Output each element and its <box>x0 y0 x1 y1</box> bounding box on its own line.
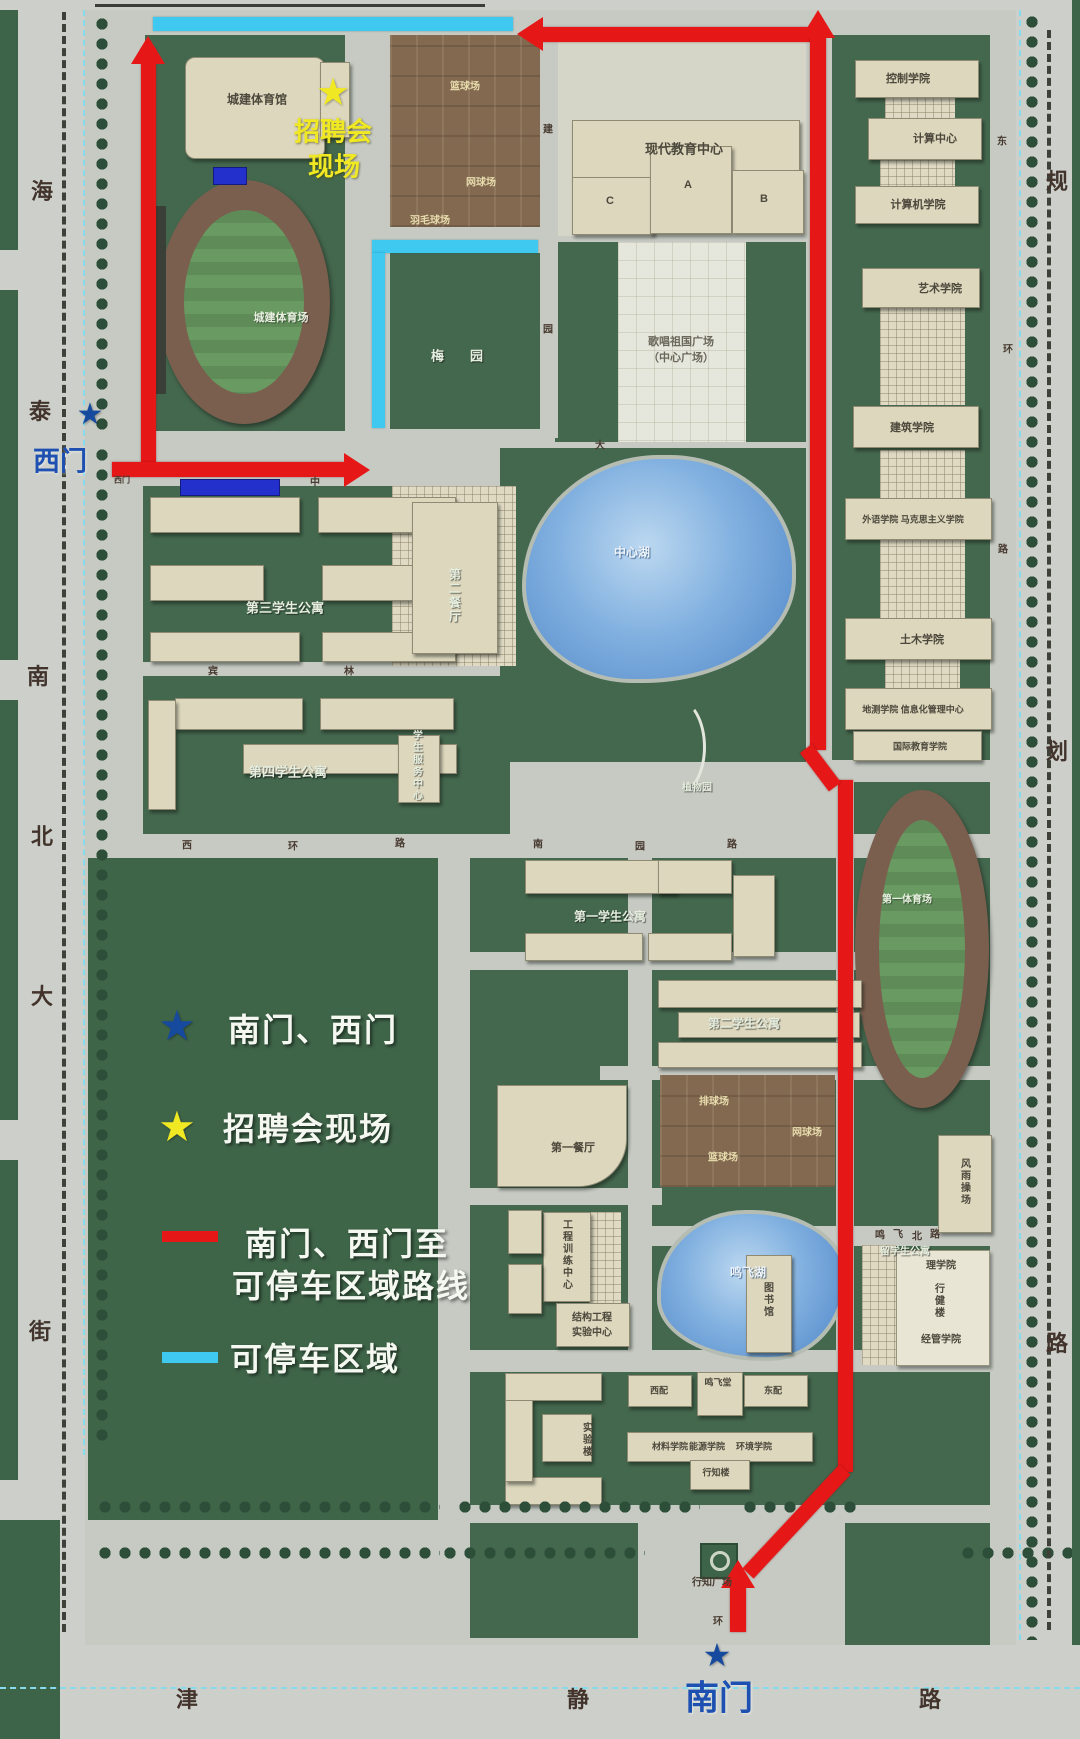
place-label: 控制学院 <box>886 70 930 86</box>
place-label: 工程训练中心 <box>559 1219 574 1291</box>
place-label: 结构工程 <box>572 1309 612 1324</box>
southwest-green-block <box>88 858 438 1520</box>
dorm-building <box>150 632 300 662</box>
road-name-char: 大 <box>595 437 605 452</box>
route-arrow-icon <box>344 453 370 487</box>
place-label: 实验楼 <box>579 1422 594 1458</box>
dorm-building <box>658 980 862 1008</box>
college-plaza <box>880 305 965 405</box>
north-courts-area <box>390 35 540 227</box>
place-label: 第一餐厅 <box>551 1139 595 1155</box>
college-plaza <box>885 658 960 688</box>
place-label: 网球场 <box>792 1124 822 1139</box>
place-label: 图书馆 <box>760 1282 775 1318</box>
lab-building <box>505 1373 602 1401</box>
street-name-char: 静 <box>567 1682 589 1714</box>
place-label: 第二餐厅 <box>447 568 464 624</box>
street-green <box>0 1520 60 1739</box>
place-label: 计算机学院 <box>891 196 946 212</box>
parking-area <box>153 17 513 31</box>
place-label: 行知楼 <box>702 1466 729 1479</box>
route-line <box>810 24 826 750</box>
legend-gate-star-icon: ★ <box>158 1005 196 1047</box>
legend-parking-swatch <box>162 1352 218 1363</box>
road-name-char: 宾 <box>208 663 218 678</box>
route-line <box>730 1588 746 1632</box>
legend-route-label-line2: 可停车区域路线 <box>232 1261 470 1307</box>
building <box>508 1264 542 1314</box>
route-line <box>141 48 156 463</box>
tree-row <box>92 14 114 434</box>
place-label: 第二学生公寓 <box>708 1015 780 1032</box>
street-name-char: 南 <box>27 659 49 691</box>
road-name-char: 行知广场 <box>692 1574 732 1589</box>
street-green <box>0 10 18 250</box>
college-plaza <box>885 96 955 118</box>
place-label: 学生服务中心 <box>409 730 424 802</box>
place-label: 现代教育中心 <box>645 139 723 158</box>
road-name-char: 路 <box>727 836 737 851</box>
road-name-char: 环 <box>713 1613 723 1628</box>
se-green-block <box>845 1523 990 1645</box>
road-name-char: 环 <box>1003 341 1013 356</box>
blue-banner-sign <box>180 479 280 496</box>
top-border-line <box>95 4 485 7</box>
place-label: 国际教育学院 <box>893 740 947 753</box>
campus-map: ★ 西门 ★ 南门 ★ 招聘会 现场 ★ 南门、西门 ★ 招聘会现场 南门、西门… <box>0 0 1080 1739</box>
street-name-char: 北 <box>31 819 53 851</box>
route-arrow-icon <box>517 17 543 51</box>
road-name-char: 园 <box>543 321 553 336</box>
place-label: 城建体育馆 <box>227 91 287 108</box>
place-label: 建筑学院 <box>890 419 934 435</box>
place-label: 植物园 <box>682 779 712 794</box>
venue-star-icon: ★ <box>316 74 350 112</box>
west-gate-label: 西门 <box>33 440 87 479</box>
place-label: （中心广场） <box>648 349 714 365</box>
lab-building <box>505 1400 533 1482</box>
place-label: 环境学院 <box>736 1440 772 1453</box>
place-label: 东配 <box>764 1384 782 1397</box>
road-name-char: 北 <box>912 1228 922 1243</box>
building <box>733 875 775 957</box>
place-label: 土木学院 <box>900 631 944 647</box>
dorm-building <box>175 698 303 730</box>
legend-venue-star-icon: ★ <box>158 1106 196 1148</box>
place-label: 艺术学院 <box>918 280 962 296</box>
tree-row <box>95 1497 440 1521</box>
place-label: 城建体育场 <box>254 309 309 325</box>
road-name-char: 建 <box>543 121 553 136</box>
legend-route-swatch <box>162 1231 218 1242</box>
place-label: 中心湖 <box>614 544 650 561</box>
place-label: 篮球场 <box>450 78 480 93</box>
road-name-char: 中 <box>310 474 320 489</box>
tree-row <box>455 1497 700 1521</box>
venue-label-line2: 现场 <box>308 147 360 184</box>
tree-row <box>92 445 114 1445</box>
parking-area <box>372 253 385 428</box>
legend-gate-label: 南门、西门 <box>228 1005 398 1051</box>
road-name-char: 鸣 <box>875 1227 885 1242</box>
street-name-char: 街 <box>29 1314 51 1346</box>
place-label: 第一体育场 <box>882 891 932 906</box>
dorm-building <box>525 933 643 961</box>
road-name-char: 西 <box>182 837 192 852</box>
college-plaza <box>880 538 965 618</box>
building <box>508 1210 542 1254</box>
place-label: 鸣飞湖 <box>730 1264 766 1281</box>
dorm-building <box>658 1042 862 1068</box>
place-label: 留学生公寓 <box>880 1243 930 1258</box>
place-label: 第三学生公寓 <box>246 598 324 617</box>
place-label: 风雨操场 <box>957 1158 972 1206</box>
place-label: 鸣飞堂 <box>704 1376 731 1389</box>
south-gate-label: 南门 <box>685 1671 753 1720</box>
road-name-char: 南 <box>533 836 543 851</box>
campus-boundary-dotted <box>1019 10 1021 1640</box>
tree-row <box>1022 12 1042 1640</box>
college-plaza <box>880 160 955 188</box>
street-name-char: 路 <box>1046 1326 1068 1358</box>
venue-label-line1: 招聘会 <box>294 112 372 149</box>
place-label: C <box>606 195 614 207</box>
road-name-char: 东 <box>997 133 1007 148</box>
street-name-char: 大 <box>31 979 53 1011</box>
road-name-char: 环 <box>288 838 298 853</box>
street-name-char: 泰 <box>29 394 51 426</box>
place-label: B <box>760 193 768 205</box>
street-green <box>0 290 18 660</box>
route-line <box>530 27 810 42</box>
stadium-field <box>184 210 304 394</box>
dorm-building <box>658 860 732 894</box>
south-gate-star-icon: ★ <box>703 1639 732 1671</box>
street-name-char: 划 <box>1046 734 1068 766</box>
tree-row <box>440 1543 645 1567</box>
road-name-char: 路 <box>930 1226 940 1241</box>
dorm-building <box>648 933 732 961</box>
legend-venue-label: 招聘会现场 <box>223 1104 393 1150</box>
blue-banner-sign <box>213 167 247 185</box>
route-arrow-icon <box>801 10 835 38</box>
college-plaza <box>880 450 965 498</box>
street-name-char: 路 <box>919 1682 941 1714</box>
place-label: 篮球场 <box>708 1149 738 1164</box>
dorm-building <box>525 860 677 894</box>
jianyuan-road <box>540 35 558 438</box>
stadium1-field <box>879 820 965 1078</box>
place-label: 实验中心 <box>572 1324 612 1339</box>
place-label: 行健楼 <box>931 1283 946 1319</box>
road-name-char: 路 <box>395 835 405 850</box>
legend-parking-label: 可停车区域 <box>230 1334 400 1380</box>
street-name-char: 津 <box>176 1682 198 1714</box>
road-name-char: 路 <box>998 541 1008 556</box>
place-label: 地测学院 信息化管理中心 <box>862 703 964 716</box>
legend-route-label-line1: 南门、西门至 <box>245 1219 449 1265</box>
lane-line <box>62 12 66 1632</box>
place-label: A <box>684 179 692 191</box>
road-name-char: 林 <box>344 663 354 678</box>
parking-area <box>372 240 538 253</box>
place-label: 第四学生公寓 <box>249 762 327 781</box>
place-label: 羽毛球场 <box>410 212 450 227</box>
street-name-char: 规 <box>1046 164 1068 196</box>
dorm-building <box>150 565 264 601</box>
meiyuan-garden-block <box>390 253 540 429</box>
place-label: 排球场 <box>699 1093 729 1108</box>
place-label: 第一学生公寓 <box>574 908 646 925</box>
place-label: 理学院 <box>926 1257 956 1272</box>
place-label: 梅园 <box>431 346 509 365</box>
dorm-building <box>150 497 300 533</box>
lane-line <box>1047 30 1051 1630</box>
place-label: 西配 <box>650 1384 668 1397</box>
canteen1-building <box>497 1085 627 1187</box>
place-label: 经管学院 <box>921 1331 961 1346</box>
place-label: 材料学院 <box>652 1440 688 1453</box>
campus-road-vertical <box>628 855 652 1355</box>
science-plaza <box>862 1245 896 1365</box>
place-label: 计算中心 <box>913 130 957 146</box>
route-arrow-icon <box>131 36 165 64</box>
west-gate-star-icon: ★ <box>77 400 104 430</box>
tree-row <box>95 1543 440 1567</box>
place-label: 能源学院 <box>689 1440 725 1453</box>
street-green <box>0 1160 18 1480</box>
dorm-building <box>148 700 176 810</box>
road-name-char: 园 <box>635 838 645 853</box>
street-name-char: 海 <box>31 174 53 206</box>
tree-row <box>958 1543 1076 1567</box>
place-label: 歌唱祖国广场 <box>648 333 714 349</box>
place-label: 网球场 <box>466 174 496 189</box>
campus-boundary-dotted <box>83 10 85 1455</box>
street-green <box>1072 0 1080 1645</box>
street-green <box>0 700 18 1120</box>
dorm-building <box>320 698 454 730</box>
place-label: 外语学院 马克思主义学院 <box>862 513 964 526</box>
road-name-char: 西门 <box>114 475 130 486</box>
route-line <box>838 780 853 1472</box>
road-name-char: 飞 <box>893 1226 903 1241</box>
